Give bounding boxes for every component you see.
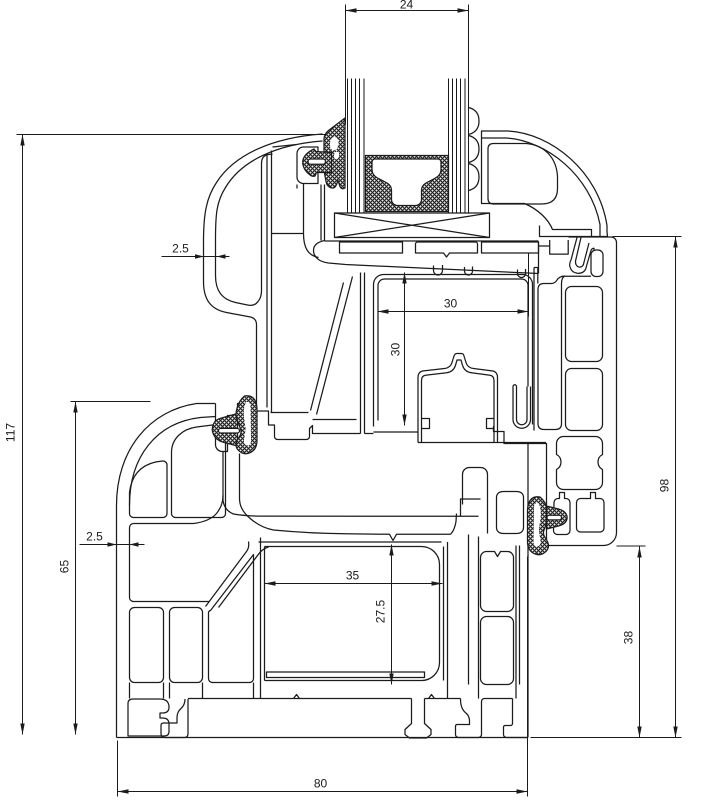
svg-text:117: 117 xyxy=(4,423,18,442)
svg-text:98: 98 xyxy=(658,479,672,493)
svg-text:80: 80 xyxy=(314,777,328,791)
svg-text:27.5: 27.5 xyxy=(374,599,388,623)
svg-text:24: 24 xyxy=(400,0,414,12)
svg-text:2.5: 2.5 xyxy=(86,530,103,544)
svg-text:30: 30 xyxy=(389,343,403,357)
svg-text:30: 30 xyxy=(444,297,458,311)
svg-text:2.5: 2.5 xyxy=(172,242,189,256)
svg-text:35: 35 xyxy=(346,569,360,583)
svg-text:65: 65 xyxy=(58,560,72,574)
svg-text:38: 38 xyxy=(622,631,636,645)
